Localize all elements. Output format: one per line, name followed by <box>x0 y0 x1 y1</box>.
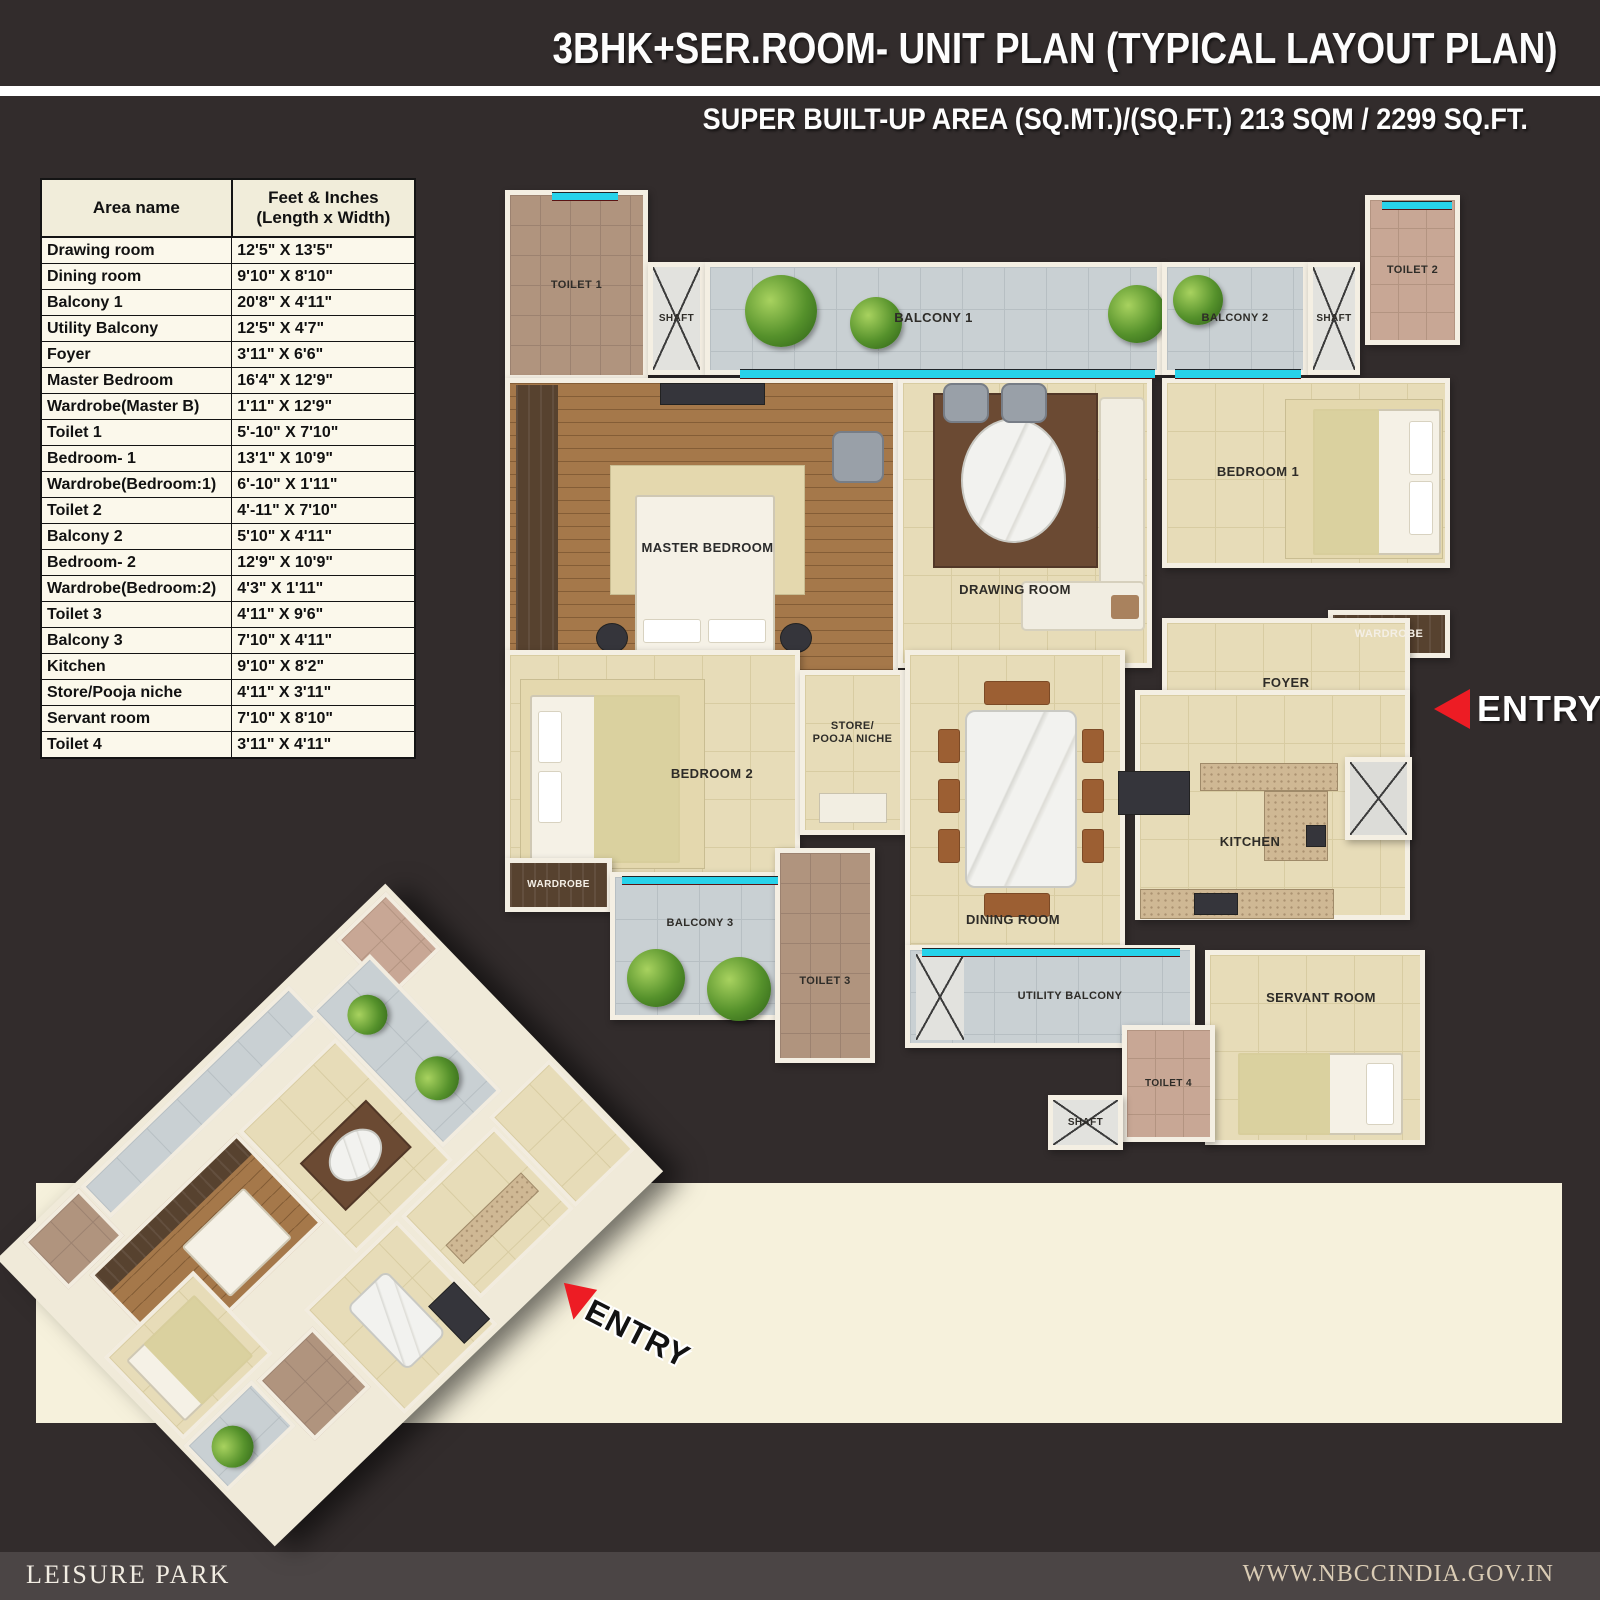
dimension-cell: 12'5" X 13'5" <box>232 237 415 264</box>
room-label: KITCHEN <box>1180 835 1320 850</box>
room-label: SHAFT <box>1316 313 1351 325</box>
room-label: DRAWING ROOM <box>925 583 1105 598</box>
room-wardrobe-bedroom-2: WARDROBE <box>505 858 612 912</box>
table-row: Utility Balcony12'5" X 4'7" <box>41 316 415 342</box>
nightstand-graphic <box>596 623 628 653</box>
room-master-bedroom: MASTER BEDROOM <box>505 378 898 680</box>
dimensions-header: Feet & Inches (Length x Width) <box>232 179 415 237</box>
table-row: Store/Pooja niche4'11" X 3'11" <box>41 680 415 706</box>
iso-table-graphic <box>346 1270 447 1372</box>
table-row: Toilet 15'-10" X 7'10" <box>41 420 415 446</box>
room-label: BEDROOM 2 <box>632 767 792 782</box>
table-row: Wardrobe(Bedroom:2)4'3" X 1'11" <box>41 576 415 602</box>
chair-graphic <box>938 779 960 813</box>
armchair-graphic <box>943 383 989 423</box>
room-shaft-top-left: SHAFT <box>648 262 705 375</box>
dimension-cell: 13'1" X 10'9" <box>232 446 415 472</box>
blanket-graphic <box>1313 409 1379 555</box>
table-row: Balcony 25'10" X 4'11" <box>41 524 415 550</box>
table-row: Wardrobe(Master B)1'11" X 12'9" <box>41 394 415 420</box>
table-row: Servant room7'10" X 8'10" <box>41 706 415 732</box>
table-row: Bedroom- 212'9" X 10'9" <box>41 550 415 576</box>
dimension-cell: 12'9" X 10'9" <box>232 550 415 576</box>
room-label: TOILET 3 <box>780 975 870 988</box>
table-row: Master Bedroom16'4" X 12'9" <box>41 368 415 394</box>
room-label: BEDROOM 1 <box>1183 465 1333 480</box>
table-row: Bedroom- 113'1" X 10'9" <box>41 446 415 472</box>
table-row: Drawing room12'5" X 13'5" <box>41 237 415 264</box>
window-strip <box>552 192 618 201</box>
table-row: Wardrobe(Bedroom:1)6'-10" X 1'11" <box>41 472 415 498</box>
plant-graphic <box>339 987 396 1044</box>
entry-marker-iso: ENTRY <box>558 1276 788 1396</box>
area-name-cell: Wardrobe(Bedroom:2) <box>41 576 232 602</box>
area-name-cell: Toilet 1 <box>41 420 232 446</box>
store-label-line2: POOJA NICHE <box>813 733 893 745</box>
page-title: 3BHK+SER.ROOM- UNIT PLAN (TYPICAL LAYOUT… <box>553 24 1558 74</box>
room-label: TOILET 1 <box>551 279 602 292</box>
area-name-cell: Balcony 2 <box>41 524 232 550</box>
room-balcony-3: BALCONY 3 <box>610 872 790 1020</box>
room-balcony-1: BALCONY 1 <box>705 262 1162 375</box>
pillow-graphic <box>643 619 701 643</box>
wardrobe-graphic <box>516 385 558 665</box>
area-name-cell: Foyer <box>41 342 232 368</box>
window-strip <box>622 876 778 885</box>
entry-label: ENTRY <box>1477 688 1600 730</box>
website-link: WWW.NBCCINDIA.GOV.IN <box>1243 1561 1554 1588</box>
cushion-graphic <box>1111 595 1139 619</box>
room-label: FOYER <box>1263 676 1310 691</box>
kitchen-island-graphic <box>1118 771 1190 815</box>
table-row: Foyer3'11" X 6'6" <box>41 342 415 368</box>
table-row: Toilet 24'-11" X 7'10" <box>41 498 415 524</box>
area-name-cell: Servant room <box>41 706 232 732</box>
room-toilet-3: TOILET 3 <box>775 848 875 1063</box>
iso-counter-graphic <box>445 1172 539 1264</box>
pillow-graphic <box>1409 421 1433 475</box>
plant-graphic <box>1108 285 1166 343</box>
dimension-cell: 4'11" X 3'11" <box>232 680 415 706</box>
room-label: SHAFT <box>659 313 694 325</box>
table-row: Toilet 34'11" X 9'6" <box>41 602 415 628</box>
nightstand-graphic <box>780 623 812 653</box>
room-servant-room: SERVANT ROOM <box>1205 950 1425 1145</box>
room-label: BALCONY 2 <box>1202 312 1269 325</box>
room-balcony-2: BALCONY 2 <box>1162 262 1308 375</box>
area-name-header: Area name <box>41 179 232 237</box>
room-toilet-1: TOILET 1 <box>505 190 648 380</box>
room-label: BALCONY 1 <box>894 311 972 326</box>
area-name-cell: Master Bedroom <box>41 368 232 394</box>
shaft-graphic <box>916 954 964 1040</box>
area-name-cell: Drawing room <box>41 237 232 264</box>
table-row: Balcony 120'8" X 4'11" <box>41 290 415 316</box>
entry-arrow-icon <box>1434 689 1470 729</box>
window-strip <box>740 369 1155 379</box>
room-shaft-bottom: SHAFT <box>1048 1095 1123 1150</box>
room-shaft-top-right: SHAFT <box>1308 262 1360 375</box>
plant-graphic <box>745 275 817 347</box>
window-strip <box>1382 201 1452 210</box>
counter-graphic <box>819 793 887 823</box>
dimension-cell: 9'10" X 8'10" <box>232 264 415 290</box>
room-label: SHAFT <box>1068 1117 1103 1129</box>
footer-bar: LEISURE PARK WWW.NBCCINDIA.GOV.IN <box>0 1552 1600 1600</box>
area-name-cell: Bedroom- 2 <box>41 550 232 576</box>
sofa-graphic <box>1099 397 1145 587</box>
dimension-cell: 1'11" X 12'9" <box>232 394 415 420</box>
pillow-graphic <box>538 771 562 823</box>
room-label: UTILITY BALCONY <box>1018 990 1123 1003</box>
area-name-cell: Toilet 4 <box>41 732 232 759</box>
room-store-pooja-niche: STORE/ POOJA NICHE <box>800 670 905 835</box>
chair-graphic <box>938 829 960 863</box>
project-name: LEISURE PARK <box>26 1560 230 1590</box>
dimensions-header-line2: (Length x Width) <box>235 208 412 228</box>
tv-console-graphic <box>660 383 765 405</box>
table-row: Toilet 43'11" X 4'11" <box>41 732 415 759</box>
shaft-graphic <box>1345 757 1412 840</box>
area-name-cell: Dining room <box>41 264 232 290</box>
dimension-cell: 5'-10" X 7'10" <box>232 420 415 446</box>
area-name-cell: Balcony 3 <box>41 628 232 654</box>
room-bedroom-2: BEDROOM 2 <box>505 650 800 888</box>
dimensions-header-line1: Feet & Inches <box>235 188 412 208</box>
area-name-cell: Balcony 1 <box>41 290 232 316</box>
room-label: MASTER BEDROOM <box>600 541 815 556</box>
table-header-row: Area name Feet & Inches (Length x Width) <box>41 179 415 237</box>
room-label: WARDROBE <box>527 879 590 891</box>
room-drawing-room: DRAWING ROOM <box>898 378 1152 668</box>
dimension-cell: 4'3" X 1'11" <box>232 576 415 602</box>
dimension-cell: 7'10" X 4'11" <box>232 628 415 654</box>
plant-graphic <box>627 949 685 1007</box>
cooktop-graphic <box>1194 893 1238 915</box>
dimension-cell: 12'5" X 4'7" <box>232 316 415 342</box>
area-name-cell: Bedroom- 1 <box>41 446 232 472</box>
table-row: Balcony 37'10" X 4'11" <box>41 628 415 654</box>
table-row: Dining room9'10" X 8'10" <box>41 264 415 290</box>
pillow-graphic <box>1366 1063 1394 1125</box>
room-label: TOILET 4 <box>1145 1078 1192 1090</box>
room-toilet-4: TOILET 4 <box>1122 1025 1215 1142</box>
dimension-cell: 20'8" X 4'11" <box>232 290 415 316</box>
entry-label: ENTRY <box>579 1292 696 1376</box>
room-label: BALCONY 3 <box>667 917 734 930</box>
page: 3BHK+SER.ROOM- UNIT PLAN (TYPICAL LAYOUT… <box>0 0 1600 1600</box>
area-name-cell: Store/Pooja niche <box>41 680 232 706</box>
room-label: DINING ROOM <box>938 913 1088 928</box>
window-strip <box>1175 369 1301 379</box>
dimension-cell: 3'11" X 4'11" <box>232 732 415 759</box>
floor-plan: TOILET 1 SHAFT BALCONY 1 BALCONY 2 SHAFT… <box>490 175 1465 1180</box>
window-strip <box>922 948 1180 957</box>
dimension-cell: 9'10" X 8'2" <box>232 654 415 680</box>
coffee-table-graphic <box>961 418 1066 543</box>
room-bedroom-1: BEDROOM 1 <box>1162 378 1450 568</box>
title-divider <box>0 86 1600 96</box>
plant-graphic <box>707 957 771 1021</box>
dimensions-table: Area name Feet & Inches (Length x Width)… <box>40 178 416 759</box>
room-dining-room: DINING ROOM <box>905 650 1125 950</box>
dimension-cell: 7'10" X 8'10" <box>232 706 415 732</box>
dimension-cell: 4'-11" X 7'10" <box>232 498 415 524</box>
dimension-cell: 16'4" X 12'9" <box>232 368 415 394</box>
pillow-graphic <box>708 619 766 643</box>
room-label: WARDROBE <box>1355 628 1424 641</box>
chair-graphic <box>1082 779 1104 813</box>
dining-table-graphic <box>965 710 1077 888</box>
entry-marker: ENTRY <box>1434 688 1600 730</box>
kitchen-counter-graphic <box>1200 763 1338 791</box>
table-row: Kitchen9'10" X 8'2" <box>41 654 415 680</box>
armchair-graphic <box>832 431 884 483</box>
chair-graphic <box>984 681 1050 705</box>
area-name-cell: Kitchen <box>41 654 232 680</box>
dimension-cell: 3'11" X 6'6" <box>232 342 415 368</box>
page-subtitle: SUPER BUILT-UP AREA (SQ.MT.)/(SQ.FT.) 21… <box>703 103 1528 137</box>
area-name-cell: Wardrobe(Master B) <box>41 394 232 420</box>
chair-graphic <box>938 729 960 763</box>
area-name-cell: Toilet 3 <box>41 602 232 628</box>
room-label: TOILET 2 <box>1387 264 1438 277</box>
pillow-graphic <box>538 711 562 763</box>
blanket-graphic <box>1238 1053 1330 1135</box>
dimension-cell: 5'10" X 4'11" <box>232 524 415 550</box>
area-name-cell: Wardrobe(Bedroom:1) <box>41 472 232 498</box>
room-label: STORE/ POOJA NICHE <box>813 720 893 745</box>
store-label-line1: STORE/ <box>831 720 874 732</box>
area-name-cell: Toilet 2 <box>41 498 232 524</box>
room-toilet-2: TOILET 2 <box>1365 195 1460 345</box>
room-label: SERVANT ROOM <box>1236 991 1406 1006</box>
chair-graphic <box>1082 729 1104 763</box>
area-name-cell: Utility Balcony <box>41 316 232 342</box>
chair-graphic <box>1082 829 1104 863</box>
dimension-cell: 4'11" X 9'6" <box>232 602 415 628</box>
dimension-cell: 6'-10" X 1'11" <box>232 472 415 498</box>
pillow-graphic <box>1409 481 1433 535</box>
plant-graphic <box>406 1047 468 1109</box>
armchair-graphic <box>1001 383 1047 423</box>
